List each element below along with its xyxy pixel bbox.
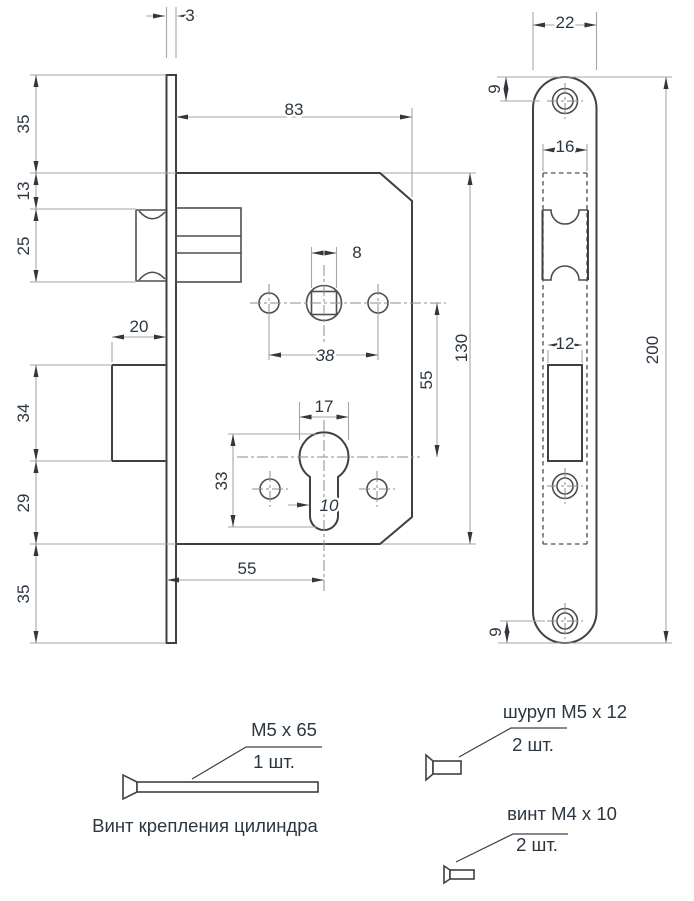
- faceplate-side: [167, 75, 177, 643]
- countersunk-screw-m5x12-icon: [426, 755, 461, 780]
- hardware-caption: Винт крепления цилиндра: [92, 815, 318, 836]
- dim-body-to-latch: 13: [14, 182, 33, 201]
- dim-bolt-height: 34: [14, 404, 33, 423]
- hardware-item-wood-screw: шуруп M5 x 12 2 шт.: [426, 701, 627, 780]
- front-view-dimensions: 22 9 16 12 200 9: [485, 12, 672, 643]
- hardware-spec-label: шуруп M5 x 12: [503, 701, 627, 722]
- dim-plate-width: 22: [556, 13, 575, 32]
- lock-technical-drawing: 3 83 35 13 25 34 29 35: [0, 0, 694, 896]
- lock-technical-drawing-page: 3 83 35 13 25 34 29 35: [0, 0, 694, 896]
- latch-cutout-front: [543, 210, 589, 280]
- dim-spindle-square: 8: [352, 243, 361, 262]
- dim-body-bottom-to-plate: 35: [14, 585, 33, 604]
- bottom-screw-hole: [547, 603, 583, 639]
- side-view: 3 83 35 13 25 34 29 35: [14, 6, 476, 643]
- dim-fix-hole-spacing: 38: [316, 346, 335, 365]
- side-view-dimensions: 3 83 35 13 25 34 29 35: [14, 6, 476, 643]
- dim-top-to-body: 35: [14, 115, 33, 134]
- deadbolt-cutout-front: [548, 365, 582, 461]
- hardware-legend: M5 x 65 1 шт. Винт крепления цилиндра шу…: [92, 701, 627, 883]
- deadbolt-side: [112, 365, 166, 461]
- spindle-and-fixing-holes: [250, 265, 446, 343]
- dim-body-depth: 83: [285, 100, 304, 119]
- dim-latch-cutout-width: 16: [556, 137, 575, 156]
- dim-top-screw-offset: 9: [485, 84, 504, 93]
- front-view: 22 9 16 12 200 9: [485, 12, 672, 643]
- hardware-spec-label: M5 x 65: [251, 719, 317, 740]
- dim-plate-thickness: 3: [185, 6, 194, 25]
- hardware-item-machine-screw: винт M4 x 10 2 шт.: [444, 803, 617, 883]
- dim-bottom-screw-offset: 9: [486, 627, 505, 636]
- dim-cylinder-total: 33: [212, 472, 231, 491]
- top-screw-hole: [547, 83, 583, 119]
- dim-bolt-throw: 20: [130, 317, 149, 336]
- hardware-qty-label: 2 шт.: [516, 834, 558, 855]
- dim-backset: 55: [238, 559, 257, 578]
- latch-bolt-side: [136, 208, 241, 282]
- hardware-qty-label: 2 шт.: [512, 734, 554, 755]
- hardware-spec-label: винт M4 x 10: [507, 803, 617, 824]
- hardware-item-cylinder-screw: M5 x 65 1 шт. Винт крепления цилиндра: [92, 719, 322, 836]
- hardware-qty-label: 1 шт.: [253, 751, 295, 772]
- dim-spindle-to-cylinder: 55: [417, 371, 436, 390]
- countersunk-screw-m4x10-icon: [444, 866, 474, 883]
- dim-plate-length: 200: [643, 336, 662, 364]
- dim-cylinder-dia: 17: [315, 397, 334, 416]
- countersunk-screw-m5x65-icon: [123, 775, 318, 799]
- dim-body-height: 130: [452, 334, 471, 362]
- dim-cylinder-slot: 10: [320, 496, 339, 515]
- cylinder-screw-hole: [547, 468, 583, 504]
- dim-bolt-cutout-width: 12: [556, 334, 575, 353]
- dim-latch-height: 25: [14, 237, 33, 256]
- dim-bolt-to-body-bottom: 29: [14, 494, 33, 513]
